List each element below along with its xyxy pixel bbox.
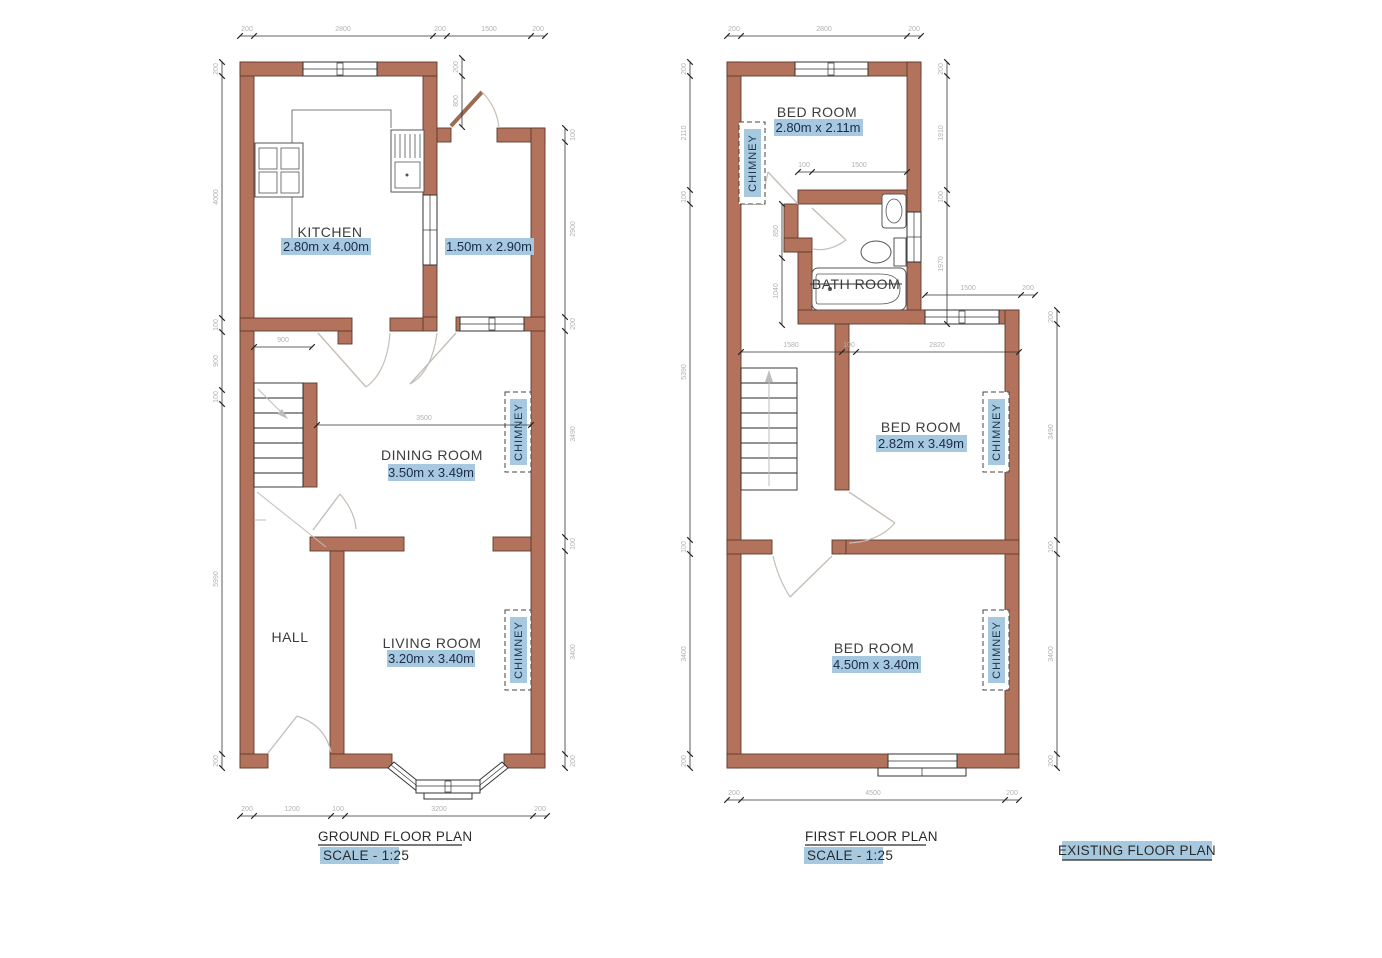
dim: 1500 — [481, 26, 497, 33]
dim: 2110 — [681, 125, 688, 140]
dim: 100 — [332, 806, 344, 813]
kitchen-label: KITCHEN — [298, 224, 363, 240]
dim: 200 — [453, 61, 460, 73]
dim: 200 — [213, 755, 220, 767]
dim: 100 — [570, 538, 577, 550]
dim: 200 — [532, 26, 544, 33]
dim: 850 — [773, 225, 780, 237]
dim: 3400 — [570, 644, 577, 660]
dim: 1910 — [938, 125, 945, 141]
ground-chimney-living: CHIMNEY — [505, 610, 531, 690]
bed3-label: BED ROOM — [834, 640, 914, 656]
dim: 200 — [908, 26, 920, 33]
chimney-label: CHIMNEY — [513, 621, 525, 679]
dim: 1580 — [783, 342, 799, 349]
dim: 5990 — [213, 571, 220, 587]
ground-floor-title: GROUND FLOOR PLAN — [318, 829, 472, 844]
dim: 200 — [570, 755, 577, 767]
dim: 100 — [570, 129, 577, 141]
dim: 200 — [938, 63, 945, 75]
dim: 800 — [453, 95, 460, 107]
first-room-labels: BED ROOM 2.80m x 2.11m BATH ROOM BED ROO… — [774, 104, 967, 673]
dim: 3200 — [431, 806, 447, 813]
dim: 2800 — [335, 26, 351, 33]
dim: 100 — [213, 391, 220, 403]
dim: 200 — [434, 26, 446, 33]
dim: 2800 — [816, 26, 832, 33]
dim: 100 — [798, 162, 810, 169]
bed2-label: BED ROOM — [881, 419, 961, 435]
dim: 4500 — [865, 790, 881, 797]
first-floor-title: FIRST FLOOR PLAN — [805, 829, 938, 844]
sheet-title: EXISTING FLOOR PLAN — [1058, 843, 1216, 858]
dim: 200 — [1022, 285, 1034, 292]
dim: 100 — [843, 342, 855, 349]
chimney-label: CHIMNEY — [991, 621, 1003, 679]
dim: 200 — [241, 26, 253, 33]
dim: 100 — [938, 191, 945, 203]
floor-plan-sheet: CHIMNEY CHIMNEY KITCHEN 2.80m x 4.00m 1.… — [0, 0, 1382, 958]
dim: 2820 — [929, 342, 945, 349]
dim: 5390 — [681, 364, 688, 380]
dining-room-label: DINING ROOM — [381, 447, 483, 463]
dim: 100 — [213, 319, 220, 331]
bed3-size: 4.50m x 3.40m — [833, 657, 919, 672]
first-doors — [763, 172, 895, 597]
first-floor-plan: CHIMNEY CHIMNEY CHIMNEY BED ROOM 2.80m x… — [681, 26, 1057, 864]
first-chimney-bed2: CHIMNEY — [983, 392, 1009, 472]
ground-title-block: GROUND FLOOR PLAN SCALE - 1:25 — [318, 829, 472, 864]
dim: 200 — [681, 63, 688, 75]
dim: 3490 — [1048, 424, 1055, 440]
bathroom-fixtures — [812, 194, 906, 310]
dim: 200 — [241, 806, 253, 813]
dim: 1970 — [938, 256, 945, 272]
kitchen-size: 2.80m x 4.00m — [283, 239, 369, 254]
dim: 200 — [1006, 790, 1018, 797]
first-title-block: FIRST FLOOR PLAN SCALE - 1:25 — [804, 829, 938, 864]
ground-chimney-dining: CHIMNEY — [505, 392, 531, 472]
ground-floor-plan: CHIMNEY CHIMNEY KITCHEN 2.80m x 4.00m 1.… — [213, 26, 577, 864]
side-room-size: 1.50m x 2.90m — [446, 239, 532, 254]
chimney-label: CHIMNEY — [747, 134, 759, 192]
sheet-title-block: EXISTING FLOOR PLAN — [1058, 841, 1216, 860]
dim: 1040 — [773, 283, 780, 299]
kitchen-fixtures — [255, 110, 424, 242]
chimney-label: CHIMNEY — [513, 403, 525, 461]
dim: 200 — [728, 26, 740, 33]
dim: 3400 — [1048, 646, 1055, 662]
dim: 900 — [213, 355, 220, 367]
dim: 4000 — [213, 189, 220, 205]
dim: 200 — [213, 63, 220, 75]
ground-floor-scale: SCALE - 1:25 — [323, 848, 409, 863]
dim: 900 — [277, 337, 289, 344]
dim: 200 — [1048, 755, 1055, 767]
dim: 100 — [681, 541, 688, 553]
hall-label: HALL — [271, 629, 308, 645]
dim: 200 — [570, 318, 577, 330]
dim: 2900 — [570, 221, 577, 237]
dim: 200 — [681, 755, 688, 767]
living-room-label: LIVING ROOM — [383, 635, 482, 651]
first-chimney-bed3: CHIMNEY — [983, 610, 1009, 690]
dim: 200 — [534, 806, 546, 813]
dim: 200 — [1048, 311, 1055, 323]
dim: 1500 — [960, 285, 976, 292]
bed2-size: 2.82m x 3.49m — [878, 436, 964, 451]
living-room-size: 3.20m x 3.40m — [388, 651, 474, 666]
chimney-label: CHIMNEY — [991, 403, 1003, 461]
first-chimney-bed1: CHIMNEY — [739, 122, 765, 204]
first-floor-scale: SCALE - 1:25 — [807, 848, 893, 863]
dim: 3500 — [416, 415, 432, 422]
dining-room-size: 3.50m x 3.49m — [388, 465, 474, 480]
dim: 100 — [681, 191, 688, 203]
dim: 1200 — [284, 806, 300, 813]
dim: 100 — [1048, 541, 1055, 553]
first-stairs — [741, 368, 797, 490]
dim: 1500 — [851, 162, 867, 169]
bed1-size: 2.80m x 2.11m — [775, 120, 860, 135]
dim: 200 — [728, 790, 740, 797]
dim: 3400 — [681, 646, 688, 662]
bed1-label: BED ROOM — [777, 104, 857, 120]
floor-plan-drawing: CHIMNEY CHIMNEY KITCHEN 2.80m x 4.00m 1.… — [0, 0, 1382, 958]
dim: 3490 — [570, 426, 577, 442]
